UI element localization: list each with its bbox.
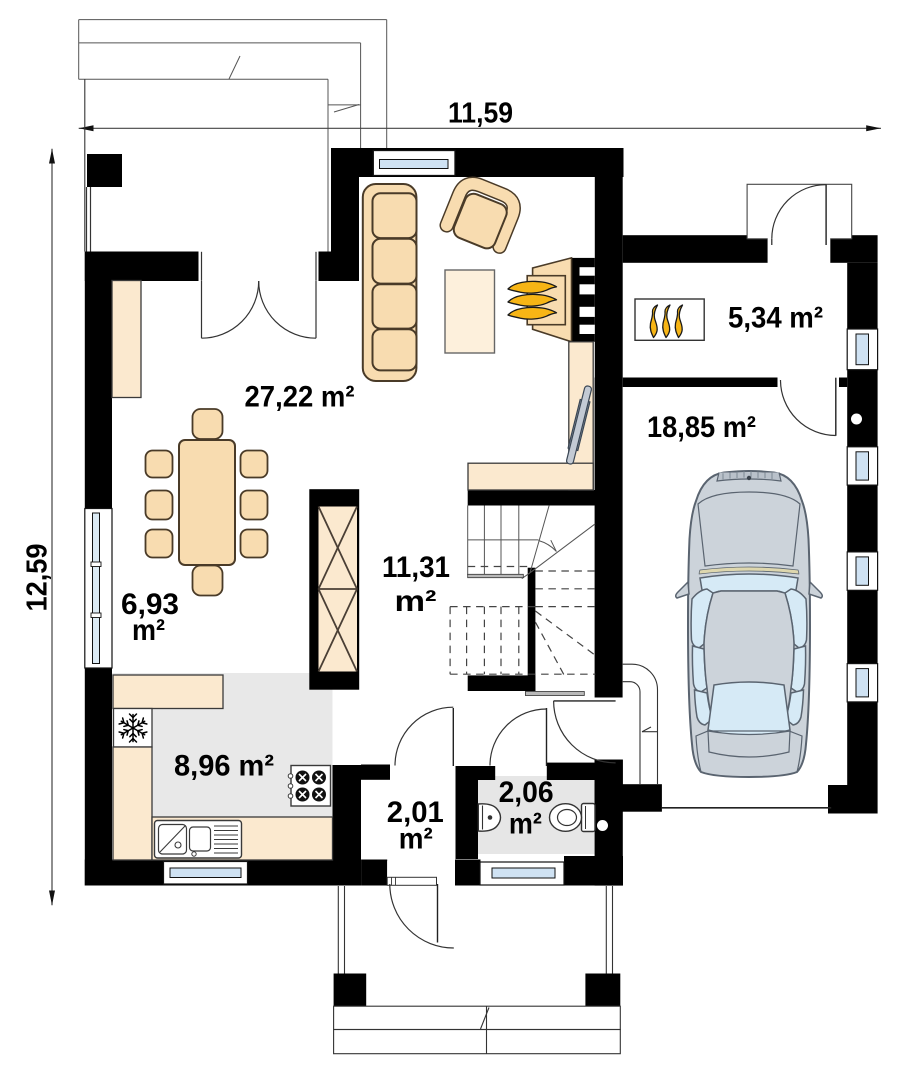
svg-text:m²: m²	[132, 614, 165, 647]
svg-text:8,96 m²: 8,96 m²	[174, 750, 274, 783]
svg-text:11,59: 11,59	[448, 98, 513, 130]
svg-text:11,31: 11,31	[382, 551, 450, 584]
svg-text:m²: m²	[399, 823, 433, 856]
svg-text:27,22 m²: 27,22 m²	[245, 381, 355, 414]
svg-text:2,06: 2,06	[499, 776, 554, 809]
svg-text:m²: m²	[509, 808, 542, 841]
svg-text:5,34 m²: 5,34 m²	[728, 302, 823, 335]
svg-text:18,85 m²: 18,85 m²	[647, 411, 756, 444]
svg-text:m²: m²	[395, 585, 437, 618]
svg-text:12,59: 12,59	[22, 544, 54, 612]
